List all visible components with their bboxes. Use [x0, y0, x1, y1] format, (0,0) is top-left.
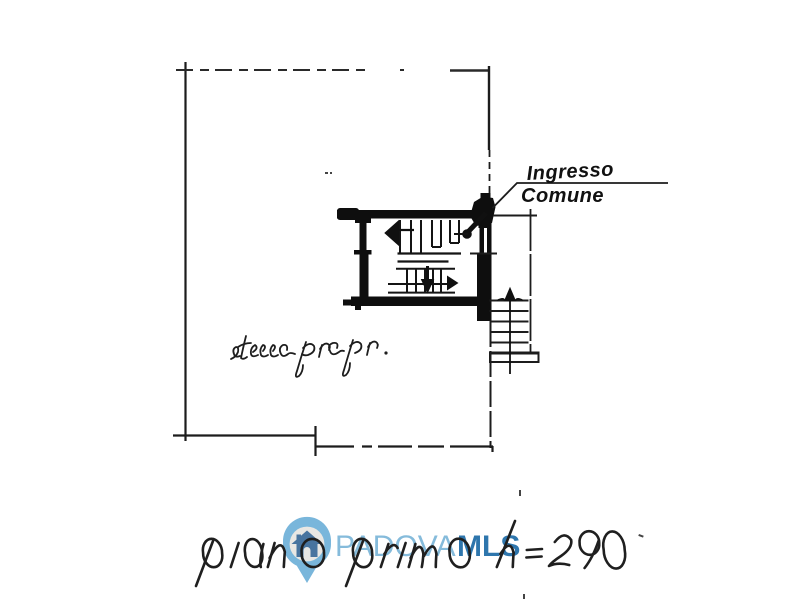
svg-text:Ingresso: Ingresso: [526, 158, 614, 185]
svg-text:Comune: Comune: [521, 185, 604, 207]
